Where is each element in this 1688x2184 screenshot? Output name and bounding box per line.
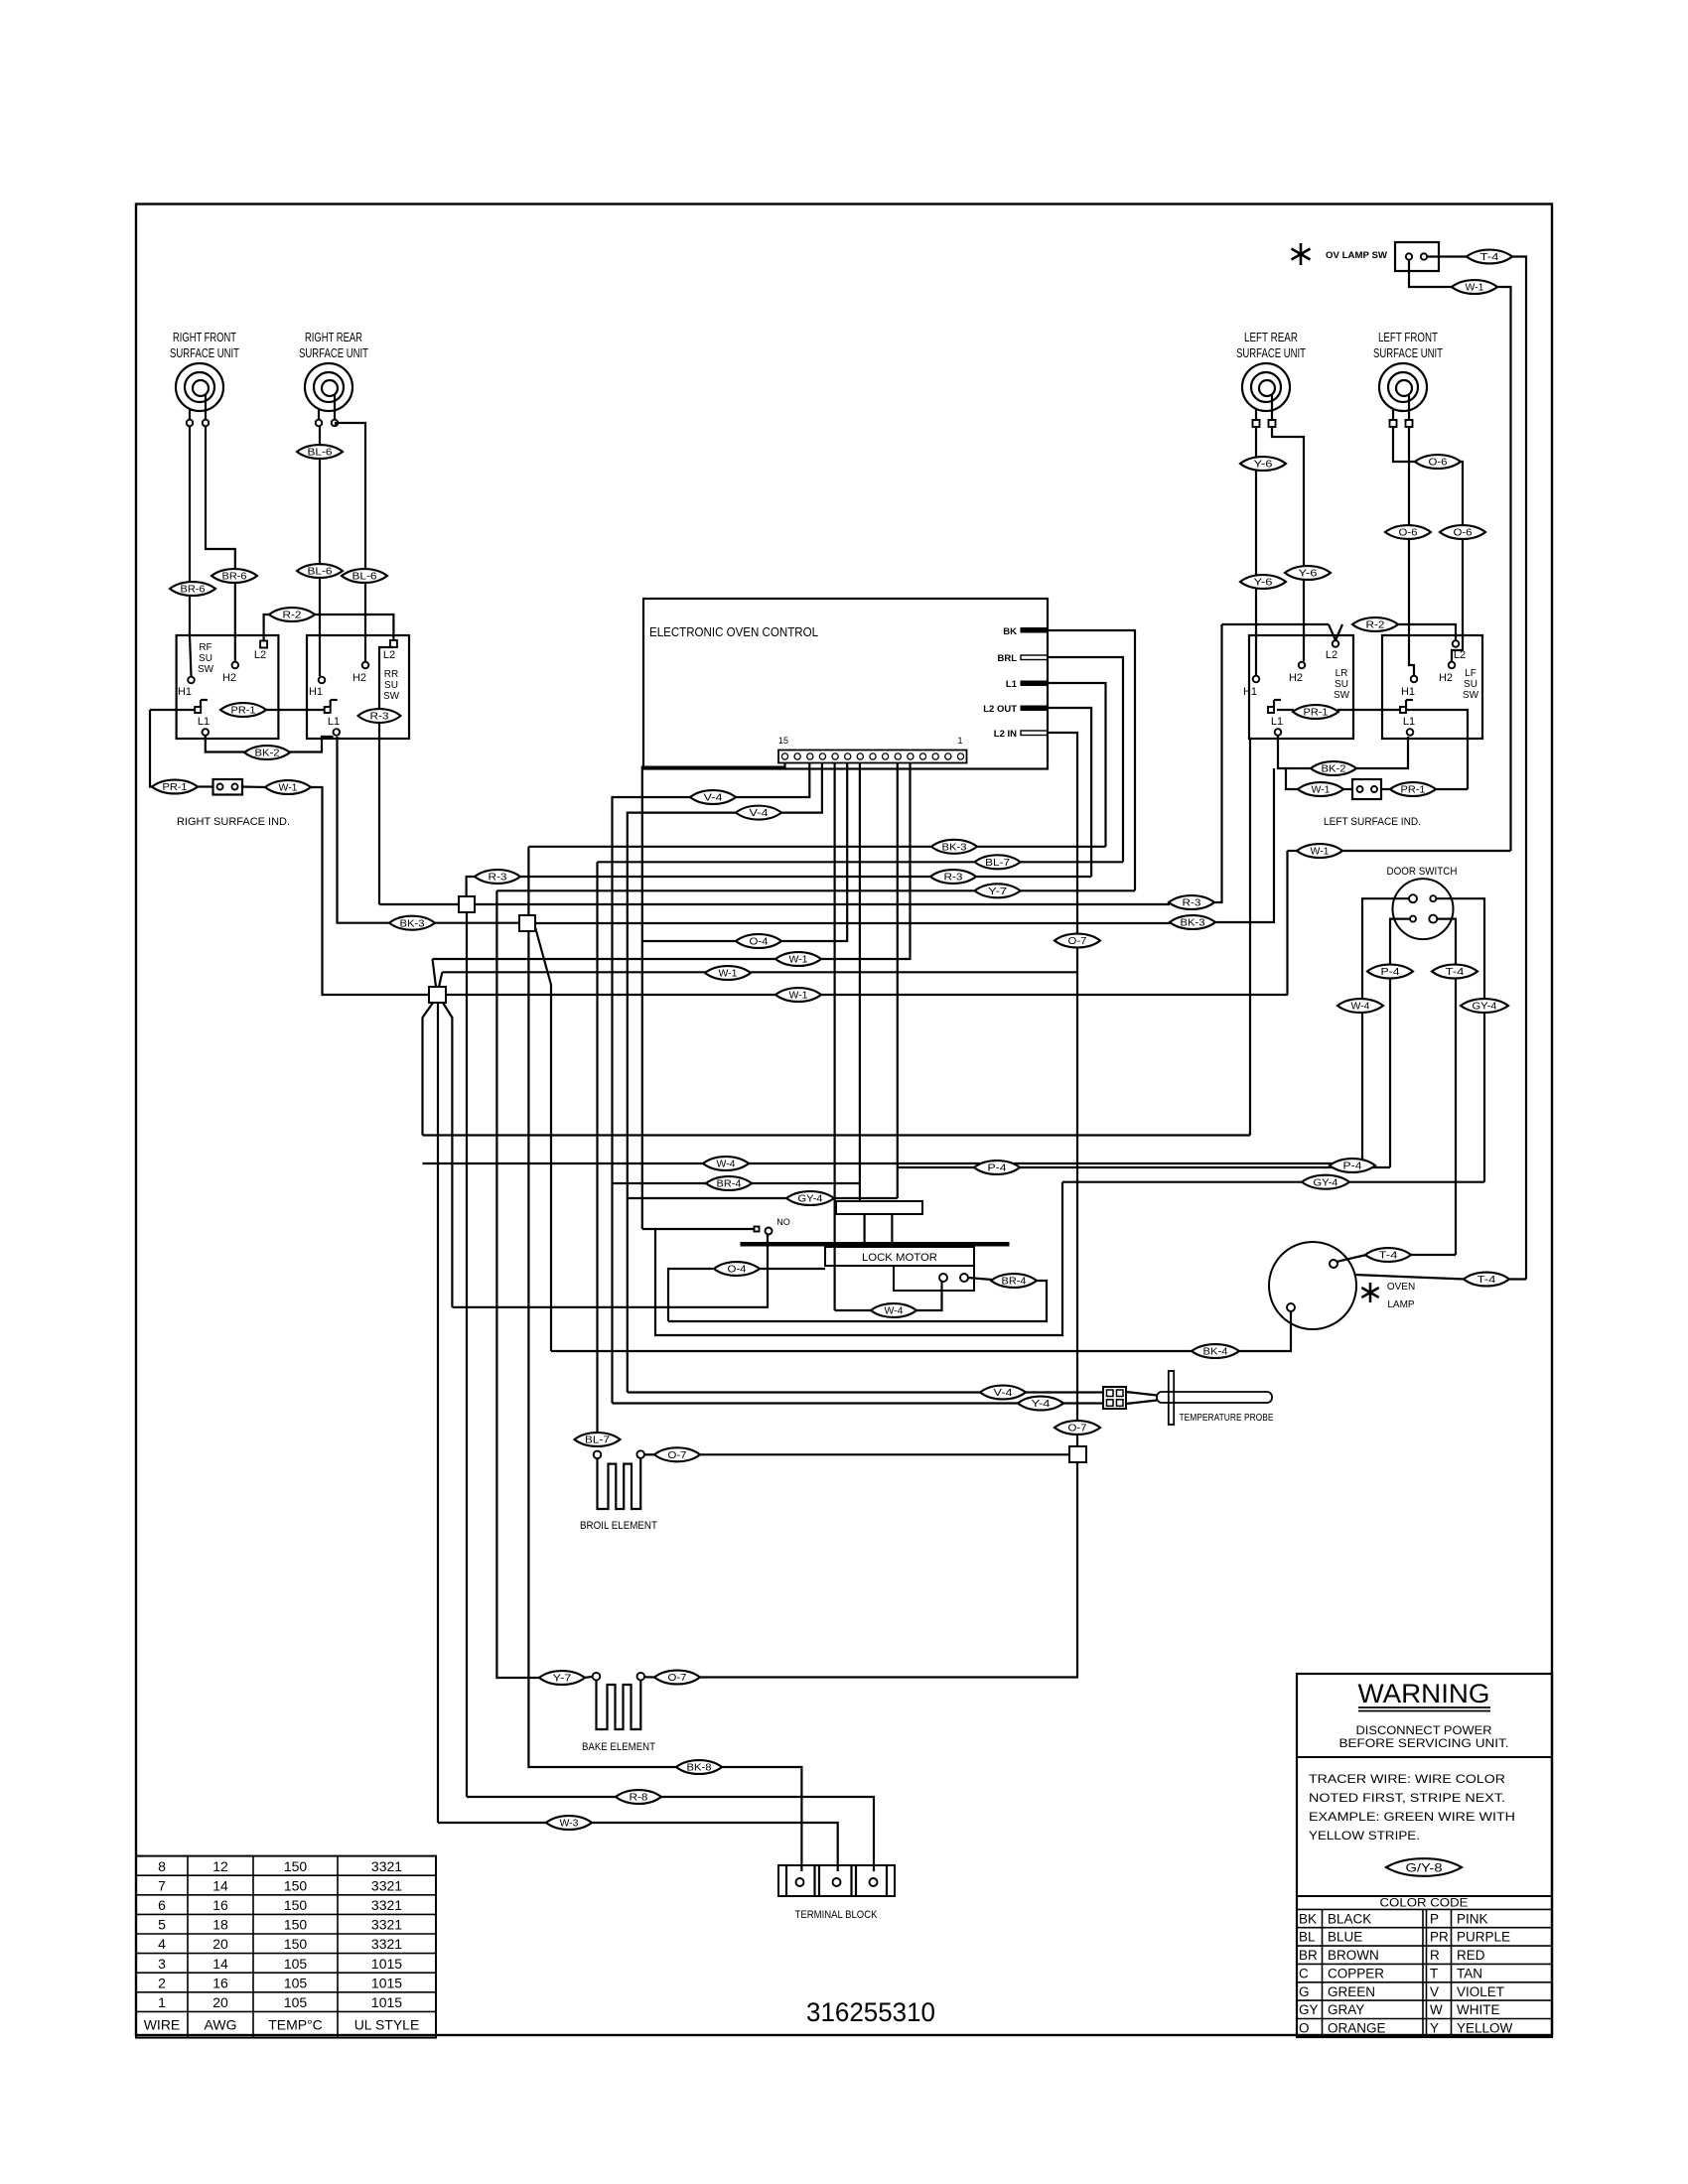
- svg-text:150: 150: [284, 1877, 308, 1893]
- svg-text:O-4: O-4: [728, 1265, 747, 1276]
- svg-text:L2: L2: [383, 649, 395, 661]
- svg-text:W-1: W-1: [279, 783, 298, 794]
- svg-text:H1: H1: [1401, 686, 1415, 698]
- svg-text:R-8: R-8: [630, 1793, 649, 1804]
- svg-text:Y-4: Y-4: [1032, 1399, 1052, 1410]
- svg-text:R-3: R-3: [944, 873, 964, 884]
- svg-text:V-4: V-4: [994, 1388, 1014, 1399]
- svg-text:DOOR SWITCH: DOOR SWITCH: [1387, 866, 1458, 878]
- svg-text:150: 150: [284, 1917, 308, 1933]
- svg-text:W-4: W-4: [885, 1306, 904, 1317]
- svg-text:BR-6: BR-6: [181, 585, 206, 596]
- svg-text:3321: 3321: [371, 1858, 402, 1874]
- svg-text:105: 105: [284, 1975, 308, 1990]
- svg-text:W-4: W-4: [1351, 1002, 1370, 1013]
- svg-text:RED: RED: [1457, 1948, 1485, 1963]
- svg-text:BL-6: BL-6: [308, 567, 334, 578]
- svg-text:WIRE: WIRE: [144, 2016, 181, 2032]
- svg-text:BR-6: BR-6: [222, 572, 247, 583]
- svg-text:P: P: [1430, 1911, 1439, 1926]
- svg-text:BL: BL: [1299, 1930, 1316, 1945]
- svg-text:GREEN: GREEN: [1328, 1984, 1375, 1999]
- svg-text:PR-1: PR-1: [163, 782, 188, 793]
- svg-text:T-4: T-4: [1480, 252, 1500, 263]
- svg-text:LEFT REAR: LEFT REAR: [1244, 331, 1298, 344]
- svg-text:SW: SW: [1334, 690, 1350, 701]
- svg-text:H1: H1: [1243, 686, 1257, 698]
- svg-text:316255310: 316255310: [806, 1997, 935, 2027]
- svg-text:R: R: [1430, 1948, 1440, 1963]
- svg-text:O-6: O-6: [1429, 458, 1448, 469]
- svg-text:20: 20: [212, 1936, 228, 1952]
- svg-text:P-4: P-4: [1381, 967, 1401, 978]
- svg-text:GRAY: GRAY: [1328, 2002, 1364, 2017]
- svg-text:BK-3: BK-3: [942, 842, 967, 853]
- svg-text:1: 1: [957, 736, 962, 746]
- svg-text:L2 OUT: L2 OUT: [983, 704, 1017, 715]
- svg-text:L2: L2: [1454, 649, 1466, 661]
- svg-text:SU: SU: [199, 653, 212, 664]
- svg-text:150: 150: [284, 1936, 308, 1952]
- svg-text:1015: 1015: [371, 1994, 402, 2010]
- svg-text:Y: Y: [1430, 2021, 1439, 2036]
- svg-text:NO: NO: [776, 1217, 790, 1227]
- svg-text:V-4: V-4: [750, 808, 770, 819]
- svg-text:EXAMPLE: GREEN WIRE WITH: EXAMPLE: GREEN WIRE WITH: [1309, 1810, 1515, 1824]
- svg-text:OVEN: OVEN: [1387, 1282, 1415, 1293]
- svg-text:SW: SW: [383, 691, 400, 702]
- svg-text:COLOR CODE: COLOR CODE: [1380, 1898, 1469, 1910]
- svg-text:R-2: R-2: [283, 611, 303, 621]
- svg-text:H2: H2: [1289, 672, 1303, 684]
- svg-text:V: V: [1430, 1984, 1439, 1999]
- svg-text:7: 7: [158, 1877, 166, 1893]
- svg-text:LF: LF: [1465, 668, 1477, 679]
- svg-text:SURFACE UNIT: SURFACE UNIT: [1236, 346, 1306, 360]
- svg-text:L1: L1: [198, 716, 210, 728]
- svg-text:Y-6: Y-6: [1299, 569, 1319, 580]
- svg-text:NOTED FIRST, STRIPE NEXT.: NOTED FIRST, STRIPE NEXT.: [1309, 1791, 1505, 1805]
- svg-text:T-4: T-4: [1446, 967, 1466, 978]
- svg-text:L1: L1: [1006, 679, 1018, 690]
- svg-text:GY-4: GY-4: [798, 1194, 823, 1205]
- svg-text:RIGHT FRONT: RIGHT FRONT: [173, 331, 236, 344]
- svg-text:OV LAMP SW: OV LAMP SW: [1326, 250, 1387, 261]
- svg-text:G: G: [1299, 1984, 1310, 1999]
- svg-text:SU: SU: [1335, 679, 1348, 690]
- svg-text:O-7: O-7: [668, 1450, 687, 1461]
- svg-text:BK-4: BK-4: [1203, 1347, 1228, 1358]
- svg-text:V-4: V-4: [704, 793, 724, 804]
- svg-text:3: 3: [158, 1956, 166, 1972]
- svg-text:L1: L1: [1271, 716, 1283, 728]
- svg-text:BK-3: BK-3: [1181, 918, 1205, 929]
- svg-text:GY-4: GY-4: [1473, 1002, 1497, 1013]
- svg-text:2: 2: [158, 1975, 166, 1990]
- svg-text:Y-7: Y-7: [988, 887, 1008, 897]
- svg-text:C: C: [1299, 1966, 1309, 1980]
- svg-text:12: 12: [212, 1858, 228, 1874]
- svg-text:SW: SW: [198, 664, 214, 675]
- svg-text:TEMPERATURE PROBE: TEMPERATURE PROBE: [1180, 1412, 1274, 1424]
- svg-text:BROIL ELEMENT: BROIL ELEMENT: [580, 1520, 657, 1532]
- svg-text:14: 14: [212, 1956, 228, 1972]
- svg-text:T-4: T-4: [1477, 1275, 1497, 1286]
- svg-text:TRACER WIRE: WIRE COLOR: TRACER WIRE: WIRE COLOR: [1309, 1772, 1505, 1786]
- svg-text:GY: GY: [1299, 2002, 1319, 2017]
- svg-text:16: 16: [212, 1975, 228, 1990]
- svg-text:R-3: R-3: [1183, 898, 1202, 909]
- svg-text:H2: H2: [222, 672, 236, 684]
- svg-text:BL-7: BL-7: [585, 1435, 611, 1446]
- svg-text:3321: 3321: [371, 1917, 402, 1933]
- svg-text:LAMP: LAMP: [1387, 1299, 1415, 1310]
- svg-text:LEFT FRONT: LEFT FRONT: [1378, 331, 1438, 344]
- svg-text:YELLOW STRIPE.: YELLOW STRIPE.: [1309, 1829, 1420, 1843]
- svg-text:3321: 3321: [371, 1897, 402, 1913]
- svg-text:GY-4: GY-4: [1314, 1177, 1338, 1188]
- svg-text:COPPER: COPPER: [1328, 1966, 1384, 1980]
- svg-text:O-6: O-6: [1399, 528, 1418, 539]
- svg-text:W-3: W-3: [560, 1819, 579, 1830]
- svg-text:BK-2: BK-2: [1322, 764, 1346, 775]
- svg-text:6: 6: [158, 1897, 166, 1913]
- svg-text:PINK: PINK: [1457, 1911, 1488, 1926]
- svg-text:R-2: R-2: [1366, 620, 1386, 631]
- svg-text:Y-6: Y-6: [1254, 460, 1274, 471]
- svg-text:W-1: W-1: [1466, 283, 1484, 294]
- svg-text:W-1: W-1: [789, 955, 808, 966]
- svg-text:L1: L1: [1403, 716, 1415, 728]
- svg-text:T: T: [1430, 1966, 1438, 1980]
- svg-text:14: 14: [212, 1877, 228, 1893]
- svg-text:W-4: W-4: [717, 1160, 736, 1170]
- svg-text:SU: SU: [1464, 679, 1477, 690]
- svg-text:RR: RR: [384, 669, 398, 680]
- svg-text:O-7: O-7: [1068, 1424, 1087, 1434]
- svg-text:SU: SU: [384, 680, 398, 691]
- svg-text:BK: BK: [1299, 1911, 1317, 1926]
- svg-text:BROWN: BROWN: [1328, 1948, 1379, 1963]
- svg-text:3321: 3321: [371, 1936, 402, 1952]
- svg-text:YELLOW: YELLOW: [1457, 2021, 1513, 2036]
- svg-text:ELECTRONIC OVEN CONTROL: ELECTRONIC OVEN CONTROL: [649, 624, 818, 639]
- svg-text:SURFACE UNIT: SURFACE UNIT: [1373, 346, 1443, 360]
- svg-text:PR: PR: [1430, 1930, 1449, 1945]
- svg-text:O-7: O-7: [1068, 936, 1087, 947]
- svg-text:W-1: W-1: [719, 969, 738, 980]
- svg-text:1015: 1015: [371, 1975, 402, 1990]
- svg-text:VIOLET: VIOLET: [1457, 1984, 1504, 1999]
- svg-text:150: 150: [284, 1897, 308, 1913]
- svg-text:SURFACE UNIT: SURFACE UNIT: [299, 346, 368, 360]
- svg-text:BLACK: BLACK: [1328, 1911, 1371, 1926]
- svg-text:BRL: BRL: [997, 653, 1017, 664]
- svg-text:TERMINAL BLOCK: TERMINAL BLOCK: [795, 1909, 879, 1921]
- svg-text:O: O: [1299, 2021, 1310, 2036]
- svg-text:105: 105: [284, 1994, 308, 2010]
- svg-text:R-3: R-3: [370, 712, 390, 723]
- svg-text:BL-6: BL-6: [308, 448, 334, 459]
- svg-text:BR-4: BR-4: [717, 1179, 742, 1190]
- svg-text:105: 105: [284, 1956, 308, 1972]
- svg-text:RIGHT SURFACE IND.: RIGHT SURFACE IND.: [177, 816, 290, 828]
- svg-text:AWG: AWG: [205, 2016, 237, 2032]
- svg-text:PR-1: PR-1: [1401, 785, 1426, 796]
- svg-text:BLUE: BLUE: [1328, 1930, 1362, 1945]
- svg-text:1015: 1015: [371, 1956, 402, 1972]
- svg-text:W-1: W-1: [789, 991, 808, 1002]
- svg-text:W-1: W-1: [1311, 847, 1330, 858]
- svg-text:18: 18: [212, 1917, 228, 1933]
- svg-text:5: 5: [158, 1917, 166, 1933]
- svg-text:4: 4: [158, 1936, 166, 1952]
- svg-text:BL-7: BL-7: [985, 858, 1011, 869]
- svg-text:16: 16: [212, 1897, 228, 1913]
- svg-text:L2: L2: [1326, 649, 1337, 661]
- svg-text:TAN: TAN: [1457, 1966, 1482, 1980]
- svg-text:P-4: P-4: [1343, 1161, 1363, 1172]
- svg-text:BR: BR: [1299, 1948, 1318, 1963]
- svg-text:O-6: O-6: [1454, 528, 1473, 539]
- svg-text:TEMP°C: TEMP°C: [268, 2016, 323, 2032]
- svg-text:H2: H2: [1439, 672, 1453, 684]
- svg-text:8: 8: [158, 1858, 166, 1874]
- svg-text:LOCK MOTOR: LOCK MOTOR: [862, 1252, 937, 1264]
- svg-text:H2: H2: [352, 672, 366, 684]
- svg-text:WARNING: WARNING: [1358, 1679, 1490, 1708]
- svg-text:BK-8: BK-8: [687, 1763, 712, 1774]
- svg-text:BK: BK: [1003, 626, 1017, 637]
- svg-text:O-7: O-7: [668, 1673, 687, 1684]
- svg-text:Y-6: Y-6: [1254, 578, 1274, 589]
- svg-text:T-4: T-4: [1379, 1251, 1399, 1262]
- svg-text:BK-2: BK-2: [255, 749, 280, 759]
- svg-text:W: W: [1430, 2002, 1443, 2017]
- svg-text:G/Y-8: G/Y-8: [1406, 1860, 1443, 1874]
- svg-text:UL STYLE: UL STYLE: [354, 2016, 420, 2032]
- svg-text:WHITE: WHITE: [1457, 2002, 1500, 2017]
- svg-text:R-3: R-3: [489, 873, 508, 884]
- svg-text:H1: H1: [178, 686, 192, 698]
- svg-text:20: 20: [212, 1994, 228, 2010]
- svg-text:PR-1: PR-1: [1304, 708, 1329, 719]
- svg-text:LR: LR: [1336, 668, 1348, 679]
- svg-text:BL-6: BL-6: [352, 572, 378, 583]
- svg-text:SW: SW: [1463, 690, 1479, 701]
- svg-text:P-4: P-4: [988, 1163, 1008, 1174]
- svg-text:PR-1: PR-1: [231, 706, 256, 717]
- svg-text:ORANGE: ORANGE: [1328, 2021, 1386, 2036]
- svg-text:O-4: O-4: [750, 937, 769, 948]
- svg-text:W-1: W-1: [1312, 785, 1331, 796]
- svg-text:3321: 3321: [371, 1877, 402, 1893]
- svg-text:15: 15: [778, 736, 788, 746]
- svg-text:PURPLE: PURPLE: [1457, 1930, 1510, 1945]
- svg-text:SURFACE UNIT: SURFACE UNIT: [170, 346, 239, 360]
- svg-text:150: 150: [284, 1858, 308, 1874]
- svg-text:BEFORE SERVICING UNIT.: BEFORE SERVICING UNIT.: [1339, 1736, 1509, 1750]
- svg-text:RF: RF: [199, 642, 211, 653]
- svg-text:H1: H1: [309, 686, 323, 698]
- svg-text:BR-4: BR-4: [1002, 1277, 1027, 1288]
- svg-text:DISCONNECT POWER: DISCONNECT POWER: [1356, 1723, 1492, 1737]
- svg-text:RIGHT REAR: RIGHT REAR: [305, 331, 362, 344]
- svg-text:L1: L1: [328, 716, 340, 728]
- svg-text:BAKE ELEMENT: BAKE ELEMENT: [582, 1741, 655, 1753]
- svg-text:L2 IN: L2 IN: [994, 729, 1017, 740]
- svg-text:L2: L2: [254, 649, 266, 661]
- svg-text:1: 1: [158, 1994, 166, 2010]
- svg-text:BK-3: BK-3: [400, 918, 425, 929]
- svg-text:LEFT SURFACE IND.: LEFT SURFACE IND.: [1324, 816, 1421, 828]
- svg-text:Y-7: Y-7: [553, 1674, 573, 1685]
